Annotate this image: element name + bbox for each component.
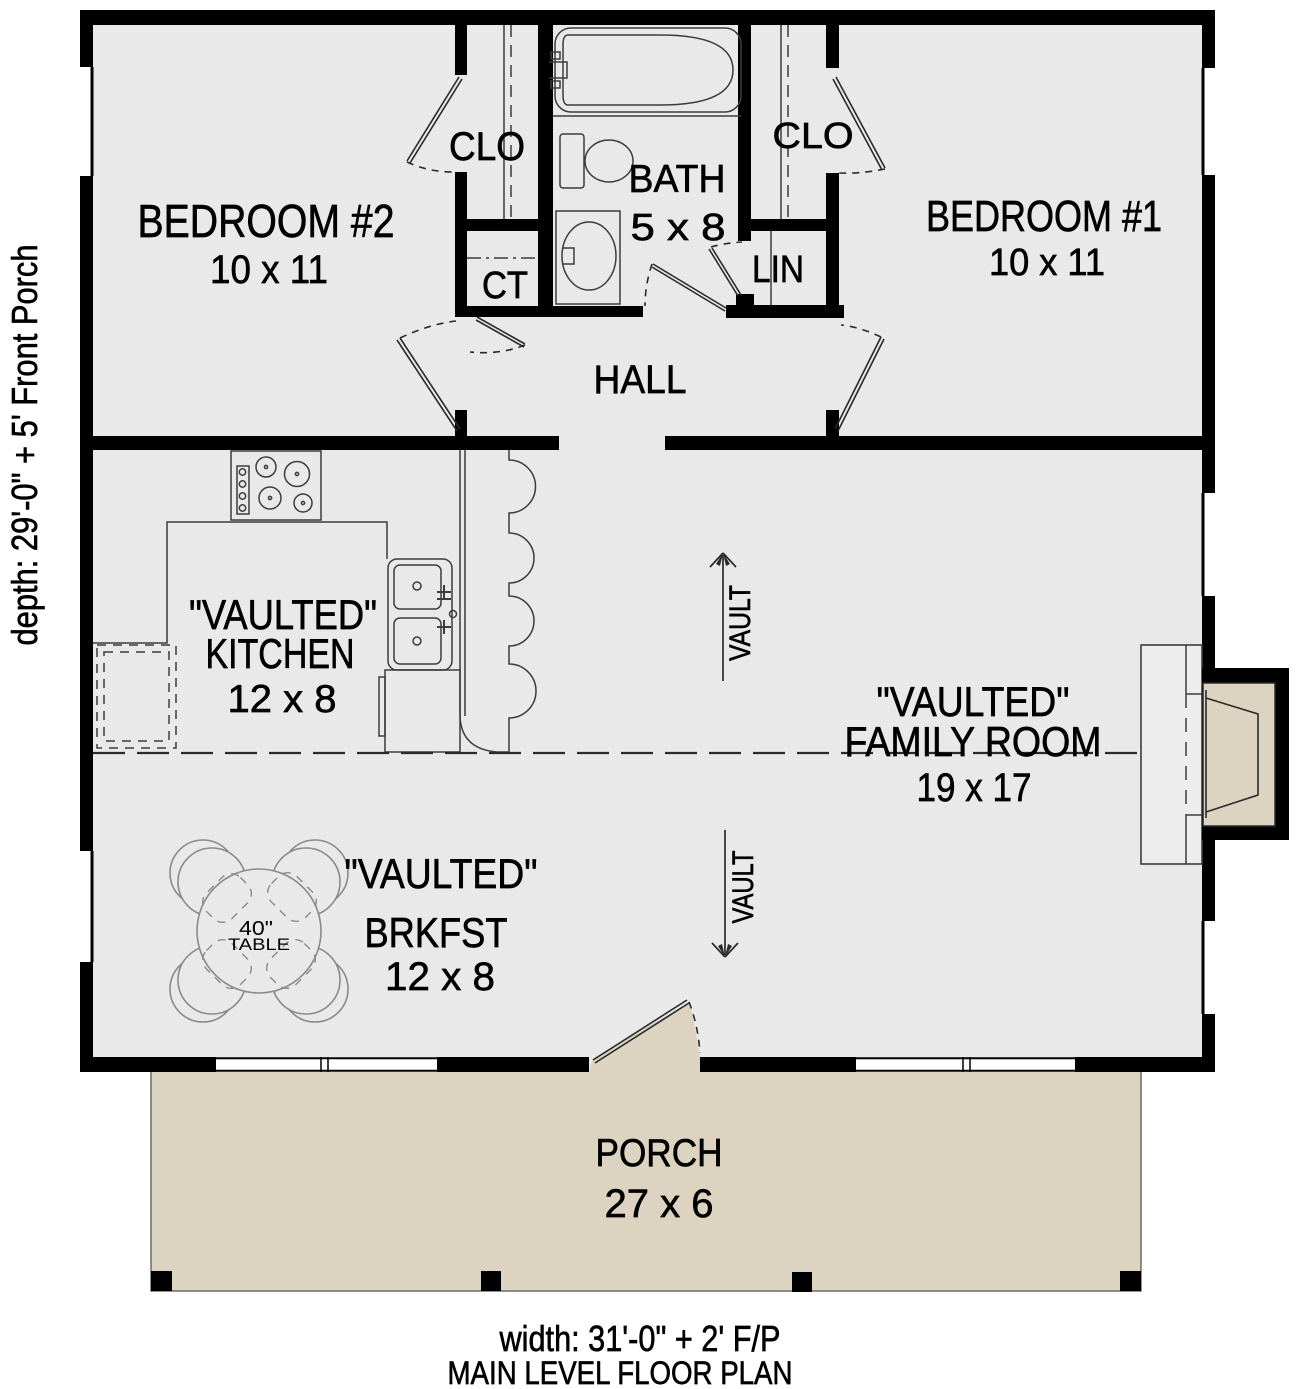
- svg-text:PORCH: PORCH: [596, 1132, 723, 1175]
- svg-text:CLO: CLO: [449, 125, 525, 169]
- svg-text:FAMILY ROOM: FAMILY ROOM: [845, 718, 1102, 765]
- svg-text:BEDROOM #2: BEDROOM #2: [138, 195, 395, 247]
- svg-text:TABLE: TABLE: [228, 935, 290, 954]
- svg-text:CLO: CLO: [773, 115, 854, 156]
- svg-text:27 x 6: 27 x 6: [605, 1182, 714, 1226]
- svg-text:12 x 8: 12 x 8: [228, 678, 337, 721]
- svg-text:width: 31'-0" + 2' F/P: width: 31'-0" + 2' F/P: [499, 1318, 781, 1359]
- svg-text:12 x 8: 12 x 8: [385, 955, 495, 999]
- svg-text:CT: CT: [482, 265, 528, 307]
- svg-text:VAULT: VAULT: [727, 851, 760, 924]
- svg-text:"VAULTED": "VAULTED": [345, 850, 538, 897]
- svg-text:KITCHEN: KITCHEN: [206, 630, 355, 677]
- svg-text:10 x 11: 10 x 11: [989, 242, 1105, 284]
- svg-text:VAULT: VAULT: [724, 585, 757, 661]
- svg-text:5 x 8: 5 x 8: [631, 207, 726, 249]
- svg-text:MAIN LEVEL FLOOR PLAN: MAIN LEVEL FLOOR PLAN: [448, 1355, 793, 1389]
- svg-text:BATH: BATH: [629, 158, 726, 201]
- svg-text:LIN: LIN: [752, 249, 804, 291]
- svg-text:depth: 29'-0" + 5' Front Porch: depth: 29'-0" + 5' Front Porch: [4, 245, 45, 646]
- svg-text:HALL: HALL: [594, 358, 687, 402]
- svg-text:19 x 17: 19 x 17: [917, 766, 1032, 810]
- svg-text:BEDROOM #1: BEDROOM #1: [926, 192, 1162, 241]
- svg-text:10 x 11: 10 x 11: [210, 248, 328, 292]
- svg-text:BRKFST: BRKFST: [365, 909, 508, 956]
